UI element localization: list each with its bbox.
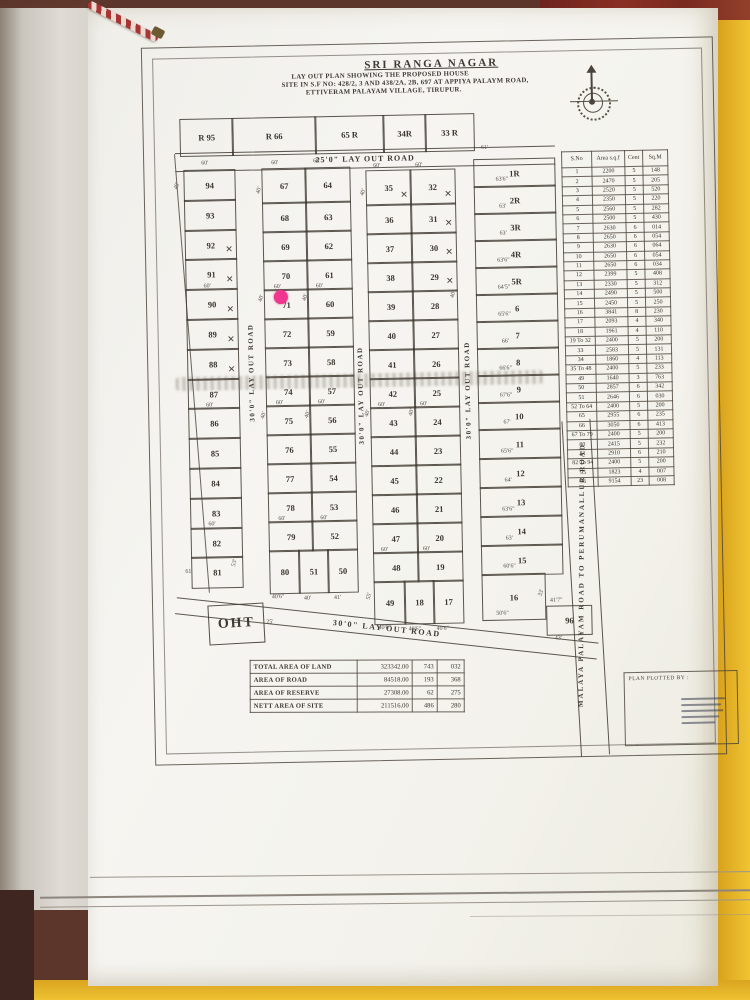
dimension-label: 63' bbox=[506, 535, 513, 541]
road-v3-text: 30'0" LAY OUT ROAD bbox=[463, 341, 473, 439]
plot-cell-4R: 4R bbox=[475, 239, 558, 270]
summary-table-cell: 032 bbox=[437, 660, 464, 673]
sold-cross-mark-icon: ✕ bbox=[446, 276, 454, 287]
area-table-row: 96915423008 bbox=[568, 476, 674, 488]
plot-cell-30: 30✕ bbox=[411, 232, 458, 264]
area-table-cell: 5 bbox=[625, 185, 643, 195]
plot-number: 30 bbox=[430, 242, 439, 252]
plot-number: 27 bbox=[431, 329, 440, 339]
plot-cell-1R: 1R bbox=[473, 158, 556, 189]
plot-number: 23 bbox=[434, 445, 443, 455]
area-table-body: 1220051482247052053252055204235052205256… bbox=[562, 166, 674, 487]
area-table-cell: 200 bbox=[649, 457, 674, 467]
sold-cross-mark-icon: ✕ bbox=[445, 218, 453, 229]
area-table-cell: 6 bbox=[630, 420, 648, 430]
plot-number: 37 bbox=[386, 243, 395, 253]
plot-cell-75: 75 bbox=[266, 404, 312, 436]
plot-cell-73: 73 bbox=[265, 346, 311, 378]
summary-table-cell: 275 bbox=[437, 686, 464, 699]
summary-table-cell: AREA OF ROAD bbox=[250, 673, 357, 686]
plot-cell-14: 14 bbox=[480, 514, 563, 547]
dimension-label: 63'6" bbox=[496, 176, 509, 182]
area-table-cell: 200 bbox=[648, 400, 673, 410]
photo-of-layout-document: SRI RANGA NAGAR LAY OUT PLAN SHOWING THE… bbox=[0, 0, 750, 1000]
plot-number: 52 bbox=[330, 530, 339, 540]
sold-cross-mark-icon: ✕ bbox=[228, 364, 236, 375]
plot-cell-2R: 2R bbox=[474, 185, 557, 216]
sold-cross-mark-icon: ✕ bbox=[445, 247, 453, 258]
dimension-label: 60' bbox=[373, 163, 380, 169]
dimension-label: 40'6" bbox=[409, 626, 422, 632]
plot-number: 60 bbox=[326, 298, 335, 308]
plot-number: 47 bbox=[391, 533, 400, 543]
area-table-cell: 113 bbox=[647, 354, 672, 364]
area-table-cell: 312 bbox=[645, 278, 670, 288]
plot-number: 43 bbox=[389, 417, 398, 427]
plot-number: 13 bbox=[517, 497, 526, 507]
plot-cell-67: 67 bbox=[261, 168, 307, 205]
plot-cell-60: 60 bbox=[307, 288, 354, 320]
plot-cell-91: 91✕ bbox=[185, 258, 238, 291]
plot-cell-64: 64 bbox=[304, 167, 351, 204]
dimension-label: 60' bbox=[271, 160, 278, 166]
sold-cross-mark-icon: ✕ bbox=[227, 334, 235, 345]
area-table-cell: 5 bbox=[625, 176, 643, 186]
area-table-cell: 250 bbox=[645, 297, 670, 307]
plot-cell-29: 29✕ bbox=[411, 261, 458, 293]
plot-number: 54 bbox=[329, 472, 338, 482]
area-table-cell: 6 bbox=[626, 241, 644, 251]
plot-number: 94 bbox=[205, 180, 214, 190]
area-table-cell: 5 bbox=[630, 401, 648, 411]
summary-table-cell: 280 bbox=[437, 699, 464, 712]
plot-cell-56: 56 bbox=[309, 404, 356, 436]
plot-number: 79 bbox=[287, 531, 296, 541]
dimension-label: 63' bbox=[500, 231, 507, 237]
dimension-label: 60'6" bbox=[503, 563, 516, 569]
area-table-cell: 6 bbox=[627, 251, 645, 261]
plot-cell-46: 46 bbox=[372, 493, 419, 525]
plot-cell-52: 52 bbox=[311, 520, 358, 552]
area-table-cell: 008 bbox=[649, 476, 674, 486]
plot-number: 96 bbox=[565, 615, 574, 625]
area-table-cell: 6 bbox=[630, 410, 648, 420]
area-table-cell: 5 bbox=[627, 270, 645, 280]
plot-cell-13: 13 bbox=[480, 485, 563, 518]
plot-number: 90 bbox=[208, 299, 217, 309]
plot-number: 26 bbox=[432, 358, 441, 368]
plot-number: 3R bbox=[510, 222, 521, 232]
dimension-label: 64' bbox=[505, 477, 512, 483]
dimension-label: 60' bbox=[381, 547, 388, 553]
plot-number: 9 bbox=[517, 384, 521, 394]
plot-number: 22 bbox=[434, 474, 443, 484]
plot-cell-89: 89✕ bbox=[186, 318, 239, 351]
plot-number: 53 bbox=[330, 501, 339, 511]
area-table-header-cell: S.No bbox=[562, 151, 592, 168]
area-table-header-cell: Area s.q.f bbox=[592, 151, 625, 168]
plot-cell-69: 69 bbox=[263, 231, 309, 263]
plot-cell-93: 93 bbox=[184, 199, 237, 232]
summary-table-row: AREA OF ROAD84518.00193368 bbox=[250, 673, 464, 687]
signature-box: PLAN PLOTTED BY : bbox=[623, 670, 738, 746]
dimension-label: 43' bbox=[555, 635, 562, 641]
plot-number: 68 bbox=[280, 212, 289, 222]
plot-number: 58 bbox=[327, 356, 336, 366]
area-table-cell: 007 bbox=[649, 466, 674, 476]
dimension-label: 66' bbox=[502, 338, 509, 344]
area-summary-table: TOTAL AREA OF LAND323342.00743032AREA OF… bbox=[250, 659, 465, 713]
area-table-cell: 9154 bbox=[598, 476, 631, 486]
plot-number: 15 bbox=[518, 555, 527, 565]
road-v2-text: 30'0" LAY OUT ROAD bbox=[356, 346, 366, 444]
plot-cell-82: 82 bbox=[190, 527, 243, 559]
sold-cross-mark-icon: ✕ bbox=[400, 189, 408, 200]
plot-number: 20 bbox=[435, 532, 444, 542]
area-table-cell: 6 bbox=[629, 382, 647, 392]
area-table-cell: 342 bbox=[647, 382, 672, 392]
summary-table-cell: TOTAL AREA OF LAND bbox=[250, 660, 357, 673]
area-table-cell: 340 bbox=[646, 316, 671, 326]
dimension-label: 60' bbox=[318, 399, 325, 405]
summary-table-cell: 743 bbox=[412, 660, 437, 673]
summary-table-cell: NETT AREA OF SITE bbox=[250, 699, 357, 712]
plot-number: 46 bbox=[391, 504, 400, 514]
plot-number: 76 bbox=[285, 444, 294, 454]
dimension-label: 41'7" bbox=[550, 597, 563, 603]
plot-number: 88 bbox=[209, 359, 218, 369]
plan-title-block: SRI RANGA NAGAR LAY OUT PLAN SHOWING THE… bbox=[281, 55, 582, 97]
plot-cell-76: 76 bbox=[267, 433, 313, 465]
area-table-cell: 5 bbox=[625, 194, 643, 204]
plot-number: 40 bbox=[387, 330, 396, 340]
plot-cell-33-R: 33 R bbox=[424, 113, 475, 152]
plot-cell-11: 11 bbox=[479, 427, 562, 460]
area-table-cell: 6 bbox=[629, 392, 647, 402]
plot-cell-55: 55 bbox=[310, 433, 357, 465]
plot-cell-79: 79 bbox=[268, 520, 314, 552]
plot-cell-22: 22 bbox=[415, 463, 462, 495]
summary-table-cell: 323342.00 bbox=[357, 660, 412, 673]
plot-cell-24: 24 bbox=[414, 405, 461, 437]
underlying-paper-stack bbox=[0, 8, 100, 910]
dimension-label: 41' bbox=[334, 595, 341, 601]
area-table-cell: 67 To 79 bbox=[567, 430, 597, 440]
dimension-label: 65'6" bbox=[501, 448, 514, 454]
sold-cross-mark-icon: ✕ bbox=[226, 274, 234, 285]
plot-cell-49: 49 bbox=[374, 581, 407, 626]
plot-number: 6 bbox=[515, 303, 519, 313]
area-table-cell: 413 bbox=[648, 419, 673, 429]
plot-number: 55 bbox=[329, 443, 338, 453]
plot-cell-R-66: R 66 bbox=[231, 116, 317, 156]
dimension-label: 67' bbox=[503, 419, 510, 425]
plot-number: 21 bbox=[435, 503, 444, 513]
summary-table-cell: 62 bbox=[412, 686, 437, 699]
plot-number: 44 bbox=[390, 446, 399, 456]
summary-table-cell: 27308.00 bbox=[357, 686, 412, 699]
dimension-label: 60' bbox=[320, 515, 327, 521]
summary-table-cell: 84518.00 bbox=[357, 673, 412, 686]
plot-number: 70 bbox=[282, 270, 291, 280]
plot-cell-37: 37 bbox=[367, 232, 414, 264]
area-table-cell: 5 bbox=[628, 345, 646, 355]
area-table-cell: 5 bbox=[626, 204, 644, 214]
dimension-label: 60' bbox=[201, 160, 208, 166]
plot-number: 92 bbox=[206, 240, 215, 250]
plot-number: 91 bbox=[207, 269, 216, 279]
dimension-label: 40' bbox=[304, 596, 311, 602]
area-table-cell: 763 bbox=[647, 372, 672, 382]
plot-number: 64 bbox=[323, 180, 332, 190]
plot-number: 36 bbox=[385, 214, 394, 224]
summary-table-cell: 368 bbox=[437, 673, 464, 686]
dimension-label: 63'6" bbox=[502, 506, 515, 512]
plot-cell-19: 19 bbox=[417, 550, 464, 582]
area-table-cell: 500 bbox=[645, 288, 670, 298]
area-table-cell: 5 bbox=[627, 288, 645, 298]
summary-table-cell: 486 bbox=[412, 699, 437, 712]
plot-cell-31: 31✕ bbox=[410, 203, 457, 235]
plotted-by-label: PLAN PLOTTED BY : bbox=[629, 675, 690, 682]
road-v1-text: 30'0" LAY OUT ROAD bbox=[246, 323, 256, 421]
plot-cell-48: 48 bbox=[373, 551, 420, 583]
area-table-cell: 5 bbox=[626, 213, 644, 223]
plot-cell-38: 38 bbox=[367, 261, 414, 293]
plot-cell-92: 92✕ bbox=[185, 229, 238, 261]
plot-number: 85 bbox=[211, 448, 220, 458]
dimension-label: 25' bbox=[266, 619, 273, 625]
dimension-label: 60' bbox=[208, 521, 215, 527]
plot-area-table: S.NoArea s.q.fCentSq.M 12200514822470520… bbox=[561, 149, 675, 487]
plot-cell-77: 77 bbox=[267, 462, 313, 494]
area-table-cell: 232 bbox=[648, 438, 673, 448]
plot-number: 10 bbox=[515, 411, 524, 421]
plot-cell-3R: 3R bbox=[474, 212, 557, 243]
plot-cell-84: 84 bbox=[189, 467, 242, 500]
area-table-cell: 5 bbox=[628, 335, 646, 345]
area-table-cell: 5 bbox=[627, 298, 645, 308]
dimension-label: 50'6" bbox=[496, 611, 509, 617]
summary-table-body: TOTAL AREA OF LAND323342.00743032AREA OF… bbox=[250, 660, 464, 713]
plot-cell-36: 36 bbox=[366, 203, 413, 235]
plot-number: 14 bbox=[517, 526, 526, 536]
area-table-cell: 064 bbox=[644, 241, 669, 251]
plot-number: 73 bbox=[283, 357, 292, 367]
plot-cell-R-95: R 95 bbox=[179, 118, 234, 157]
plot-number: 18 bbox=[415, 597, 424, 607]
plot-cell-86: 86 bbox=[188, 407, 241, 440]
plot-cell-65-R: 65 R bbox=[314, 115, 385, 154]
plot-cell-6: 6 bbox=[476, 292, 559, 323]
dimension-label: 60' bbox=[378, 402, 385, 408]
plot-cell-39: 39 bbox=[368, 290, 415, 322]
area-table-cell: 19 To 32 bbox=[565, 336, 595, 346]
area-table-cell: 6 bbox=[626, 223, 644, 233]
oht-label: OHT bbox=[217, 615, 255, 633]
summary-table-row: NETT AREA OF SITE211516.00486280 bbox=[250, 699, 464, 713]
area-table-cell: 3 bbox=[629, 373, 647, 383]
plot-number: 4R bbox=[511, 249, 522, 259]
plot-cell-10: 10 bbox=[478, 400, 561, 431]
area-table-cell: 200 bbox=[648, 429, 673, 439]
plot-number: 1R bbox=[509, 168, 520, 178]
plot-number: 50 bbox=[339, 566, 348, 576]
area-table-cell: 5 bbox=[630, 439, 648, 449]
oht-tank-box: OHT bbox=[207, 603, 265, 646]
summary-table-cell: AREA OF RESERVE bbox=[250, 686, 357, 699]
plot-cell-62: 62 bbox=[306, 230, 353, 262]
plot-cell-40: 40 bbox=[368, 319, 415, 351]
dimension-label: 60' bbox=[278, 516, 285, 522]
dimension-label: 64'5" bbox=[498, 284, 511, 290]
area-table-cell: 5 bbox=[631, 457, 649, 467]
dimension-label: 40'6" bbox=[378, 625, 391, 631]
plot-number: 93 bbox=[206, 210, 215, 220]
plot-number: R 66 bbox=[266, 131, 283, 141]
dimension-label: 63' bbox=[499, 204, 506, 210]
area-table-cell: 35 To 48 bbox=[566, 364, 596, 374]
dimension-label: 60' bbox=[316, 283, 323, 289]
plot-cell-72: 72 bbox=[264, 317, 310, 349]
plot-number: 69 bbox=[281, 241, 290, 251]
plot-number: 12 bbox=[516, 468, 525, 478]
plot-cell-15: 15 bbox=[481, 543, 564, 576]
plot-number: 80 bbox=[281, 567, 290, 577]
area-table-header-cell: Sq.M bbox=[643, 150, 668, 166]
plot-cell-47: 47 bbox=[372, 522, 419, 554]
summary-table-cell: 211516.00 bbox=[357, 699, 412, 712]
road-top-text: 25'0" LAY OUT ROAD bbox=[315, 153, 414, 164]
plot-number: 34R bbox=[397, 128, 412, 138]
plot-number: 24 bbox=[433, 416, 442, 426]
plot-number: 7 bbox=[515, 330, 519, 340]
area-table-cell: 82 To 94 bbox=[568, 458, 598, 468]
dimension-label: 40'6" bbox=[272, 594, 285, 600]
dimension-label: 60' bbox=[423, 546, 430, 552]
plot-cell-17: 17 bbox=[433, 579, 465, 624]
plot-number: 84 bbox=[211, 478, 220, 488]
sold-cross-mark-icon: ✕ bbox=[226, 304, 234, 315]
area-table-cell: 205 bbox=[643, 175, 668, 185]
dimension-label: 63'6" bbox=[497, 257, 510, 263]
dimension-label: 60' bbox=[415, 162, 422, 168]
area-table-cell: 5 bbox=[630, 429, 648, 439]
plot-number: 49 bbox=[386, 598, 395, 608]
area-table-cell: 96 bbox=[568, 477, 598, 487]
plot-cell-12: 12 bbox=[479, 456, 562, 489]
plot-cell-96: 96 bbox=[546, 605, 593, 636]
plot-number: 82 bbox=[212, 538, 221, 548]
area-table-cell: 054 bbox=[645, 250, 670, 260]
dimension-label: 60' bbox=[420, 401, 427, 407]
plot-cell-68: 68 bbox=[262, 202, 308, 234]
plot-number: 63 bbox=[324, 212, 333, 222]
area-table-header-cell: Cent bbox=[625, 150, 643, 166]
area-table-cell: 520 bbox=[643, 185, 668, 195]
plot-number: 59 bbox=[326, 327, 335, 337]
dimension-label: 65'6" bbox=[498, 311, 511, 317]
summary-table-row: TOTAL AREA OF LAND323342.00743032 bbox=[250, 660, 464, 674]
plot-cell-78: 78 bbox=[268, 491, 314, 523]
plot-number: 8 bbox=[516, 357, 520, 367]
plot-number: 2R bbox=[510, 195, 521, 205]
plot-number: 31 bbox=[429, 213, 438, 223]
plot-cell-50: 50 bbox=[327, 549, 359, 594]
dimension-label: 60' bbox=[204, 283, 211, 289]
plot-number: 11 bbox=[516, 439, 524, 449]
area-table-cell: 5 bbox=[627, 279, 645, 289]
area-table-cell: 235 bbox=[648, 410, 673, 420]
plot-number: 29 bbox=[430, 271, 439, 281]
layout-plan-drawing: SRI RANGA NAGAR LAY OUT PLAN SHOWING THE… bbox=[141, 30, 728, 771]
plot-cell-54: 54 bbox=[310, 462, 357, 494]
plot-number: 35 bbox=[384, 183, 393, 193]
plot-cell-94: 94 bbox=[183, 169, 236, 202]
plot-number: 83 bbox=[212, 508, 221, 518]
summary-table-row: AREA OF RESERVE27308.0062275 bbox=[250, 686, 464, 700]
plot-number: 51 bbox=[310, 566, 319, 576]
plot-number: 32 bbox=[428, 182, 437, 192]
plot-number: 25 bbox=[432, 387, 441, 397]
plot-cell-90: 90✕ bbox=[186, 288, 239, 321]
plot-cell-21: 21 bbox=[416, 492, 463, 524]
sold-cross-mark-icon: ✕ bbox=[444, 189, 452, 200]
area-table-cell: 4 bbox=[628, 326, 646, 336]
area-table-cell: 200 bbox=[646, 335, 671, 345]
plot-number: 75 bbox=[285, 415, 294, 425]
area-table-cell: 282 bbox=[644, 203, 669, 213]
area-table-cell: 6 bbox=[626, 232, 644, 242]
plot-number: 86 bbox=[210, 418, 219, 428]
area-table-cell: 430 bbox=[644, 213, 669, 223]
plot-cell-44: 44 bbox=[371, 435, 418, 467]
plot-number: 81 bbox=[213, 567, 222, 577]
dimension-label: 60' bbox=[206, 402, 213, 408]
area-table-cell: 210 bbox=[648, 447, 673, 457]
dimension-label: 60' bbox=[276, 400, 283, 406]
dark-corner bbox=[0, 890, 34, 1000]
area-table-cell: 4 bbox=[631, 467, 649, 477]
plot-number: 42 bbox=[388, 388, 397, 398]
plot-number: 89 bbox=[208, 329, 217, 339]
area-table-cell: 4 bbox=[628, 316, 646, 326]
area-table-cell: 233 bbox=[647, 363, 672, 373]
area-table-cell: 230 bbox=[646, 307, 671, 317]
plot-cell-16: 16 bbox=[481, 573, 546, 621]
plot-number: 56 bbox=[328, 414, 337, 424]
plot-number: 39 bbox=[387, 301, 396, 311]
compass-rose-icon bbox=[574, 80, 615, 121]
dimension-label: 61' bbox=[481, 145, 488, 151]
area-table-cell: 408 bbox=[645, 269, 670, 279]
plot-cell-45: 45 bbox=[371, 464, 418, 496]
area-table-cell: 030 bbox=[647, 391, 672, 401]
dimension-label: 40'6" bbox=[437, 626, 450, 632]
area-table-cell: 110 bbox=[646, 325, 671, 335]
area-table-cell: 6 bbox=[630, 448, 648, 458]
area-table-cell: 014 bbox=[644, 222, 669, 232]
area-table-cell: 131 bbox=[646, 344, 671, 354]
plot-number: 65 R bbox=[341, 129, 358, 139]
plot-number: 67 bbox=[280, 181, 289, 191]
plot-number: 78 bbox=[286, 502, 295, 512]
plot-number: 16 bbox=[510, 592, 519, 602]
plot-cell-23: 23 bbox=[415, 434, 462, 466]
plot-cell-18: 18 bbox=[404, 580, 436, 625]
area-table-cell: 5 bbox=[629, 363, 647, 373]
plot-number: R 95 bbox=[198, 132, 215, 142]
